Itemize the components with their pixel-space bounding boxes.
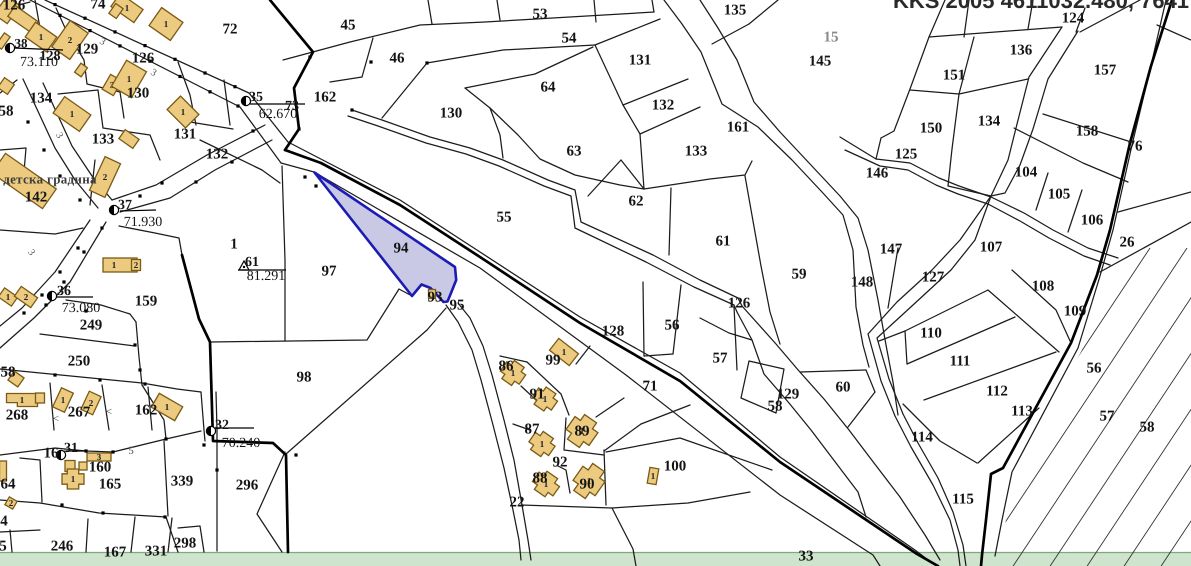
svg-text:111: 111	[950, 353, 971, 369]
svg-text:134: 134	[30, 90, 53, 106]
svg-text:160: 160	[89, 459, 112, 475]
svg-text:131: 131	[629, 52, 652, 68]
svg-text:158: 158	[1076, 123, 1099, 139]
svg-text:15: 15	[824, 29, 839, 45]
svg-text:165: 165	[99, 476, 122, 492]
svg-text:59: 59	[792, 266, 807, 282]
svg-text:104: 104	[1015, 164, 1038, 180]
svg-text:150: 150	[920, 120, 943, 136]
svg-text:161: 161	[727, 119, 750, 135]
svg-text:2: 2	[68, 35, 73, 45]
svg-text:1: 1	[562, 347, 567, 357]
svg-text:<: <	[106, 406, 112, 418]
svg-text:1: 1	[540, 439, 545, 449]
svg-text:1: 1	[127, 74, 132, 84]
svg-text:46: 46	[390, 50, 406, 66]
svg-text:86: 86	[499, 358, 515, 374]
svg-text:26: 26	[1120, 234, 1136, 250]
svg-text:159: 159	[135, 293, 158, 309]
svg-text:<: <	[53, 413, 59, 425]
svg-text:36: 36	[57, 284, 71, 299]
svg-text:2: 2	[134, 260, 139, 270]
svg-text:88: 88	[533, 470, 548, 486]
svg-text:142: 142	[25, 189, 48, 205]
svg-text:98: 98	[297, 369, 312, 385]
svg-text:146: 146	[866, 165, 889, 181]
svg-text:32: 32	[215, 418, 229, 433]
svg-text:4: 4	[0, 513, 8, 529]
svg-text:135: 135	[724, 2, 747, 18]
svg-text:249: 249	[80, 317, 103, 333]
svg-text:61: 61	[245, 255, 259, 270]
svg-text:72: 72	[223, 21, 238, 37]
svg-text:132: 132	[206, 146, 229, 162]
svg-text:145: 145	[809, 53, 832, 69]
svg-text:2: 2	[24, 292, 29, 302]
svg-text:61: 61	[716, 233, 731, 249]
svg-text:64: 64	[1, 476, 17, 492]
svg-text:126: 126	[132, 50, 155, 66]
svg-text:147: 147	[880, 241, 903, 257]
svg-text:55: 55	[497, 209, 512, 225]
svg-text:53: 53	[533, 6, 548, 22]
svg-text:1: 1	[71, 474, 76, 484]
svg-text:134: 134	[978, 113, 1001, 129]
svg-text:64: 64	[541, 79, 557, 95]
svg-text:125: 125	[895, 146, 918, 162]
svg-text:133: 133	[685, 143, 708, 159]
svg-text:97: 97	[322, 263, 338, 279]
svg-text:157: 157	[1094, 62, 1117, 78]
svg-text:298: 298	[174, 535, 197, 551]
svg-text:1: 1	[181, 107, 186, 117]
svg-text:KKS 2005 4611032.480, 764175.0: KKS 2005 4611032.480, 764175.070	[893, 0, 1191, 13]
svg-text:108: 108	[1032, 278, 1055, 294]
svg-text:113: 113	[1011, 403, 1033, 419]
svg-text:31: 31	[64, 441, 78, 456]
svg-text:339: 339	[171, 473, 194, 489]
svg-text:38: 38	[15, 36, 29, 51]
svg-text:35: 35	[249, 90, 263, 105]
svg-text:57: 57	[1100, 408, 1116, 424]
svg-text:95: 95	[450, 297, 465, 313]
svg-text:128: 128	[602, 323, 625, 339]
svg-text:58: 58	[1, 364, 16, 380]
svg-text:57: 57	[713, 350, 729, 366]
svg-text:22: 22	[510, 494, 525, 510]
svg-text:1: 1	[61, 395, 66, 405]
svg-text:267: 267	[68, 404, 91, 420]
svg-text:73.080: 73.080	[62, 301, 101, 316]
svg-text:89: 89	[575, 423, 590, 439]
svg-text:детска градина: детска градина	[3, 172, 97, 187]
svg-text:91: 91	[530, 386, 545, 402]
svg-text:296: 296	[236, 477, 259, 493]
svg-text:56: 56	[665, 317, 681, 333]
svg-text:129: 129	[76, 41, 99, 57]
svg-text:1: 1	[6, 292, 11, 302]
svg-text:100: 100	[664, 458, 687, 474]
svg-text:2: 2	[9, 498, 14, 508]
svg-text:126: 126	[3, 0, 26, 13]
svg-text:132: 132	[652, 97, 675, 113]
svg-text:16: 16	[44, 445, 60, 461]
svg-text:1: 1	[651, 471, 656, 481]
svg-text:167: 167	[104, 544, 127, 560]
svg-text:109: 109	[1064, 303, 1087, 319]
svg-text:71.930: 71.930	[124, 215, 163, 230]
svg-text:151: 151	[943, 67, 966, 83]
svg-text:331: 331	[145, 543, 168, 559]
svg-text:70.240: 70.240	[222, 436, 261, 451]
svg-text:99: 99	[546, 352, 561, 368]
svg-text:105: 105	[1048, 186, 1071, 202]
svg-text:62.670: 62.670	[259, 107, 298, 122]
svg-text:130: 130	[127, 85, 150, 101]
svg-text:130: 130	[440, 105, 463, 121]
svg-text:5: 5	[128, 445, 134, 457]
svg-text:133: 133	[92, 131, 115, 147]
svg-text:58: 58	[0, 103, 14, 119]
svg-text:162: 162	[314, 89, 337, 105]
svg-text:106: 106	[1081, 212, 1104, 228]
svg-text:2: 2	[103, 172, 108, 182]
svg-text:126: 126	[728, 295, 751, 311]
svg-text:60: 60	[836, 379, 851, 395]
svg-text:73.110: 73.110	[20, 55, 58, 70]
svg-text:76: 76	[1128, 138, 1144, 154]
svg-text:87: 87	[525, 421, 541, 437]
svg-text:148: 148	[851, 274, 874, 290]
svg-text:114: 114	[911, 429, 933, 445]
svg-text:162: 162	[135, 402, 158, 418]
svg-text:115: 115	[952, 491, 974, 507]
svg-text:90: 90	[580, 476, 595, 492]
svg-text:1: 1	[125, 3, 130, 13]
svg-text:63: 63	[567, 143, 582, 159]
svg-text:250: 250	[68, 353, 91, 369]
svg-text:1: 1	[70, 109, 75, 119]
svg-text:1: 1	[164, 19, 169, 29]
svg-text:93: 93	[428, 289, 443, 305]
svg-text:37: 37	[118, 198, 132, 213]
svg-text:112: 112	[986, 383, 1008, 399]
svg-text:136: 136	[1010, 42, 1033, 58]
svg-text:62: 62	[629, 193, 644, 209]
svg-text:33: 33	[799, 548, 814, 564]
svg-text:74: 74	[91, 0, 107, 12]
svg-text:81.291: 81.291	[247, 269, 286, 284]
svg-text:92: 92	[553, 454, 568, 470]
svg-text:107: 107	[980, 239, 1003, 255]
svg-text:54: 54	[562, 30, 578, 46]
svg-text:94: 94	[394, 240, 410, 256]
svg-text:5: 5	[0, 538, 7, 554]
svg-text:58: 58	[768, 398, 783, 414]
svg-text:1: 1	[165, 402, 170, 412]
svg-text:45: 45	[341, 17, 356, 33]
svg-text:58: 58	[1140, 419, 1155, 435]
svg-text:110: 110	[920, 325, 942, 341]
svg-text:1: 1	[230, 236, 238, 252]
svg-text:56: 56	[1087, 360, 1103, 376]
svg-text:71: 71	[643, 378, 658, 394]
svg-text:131: 131	[174, 126, 197, 142]
svg-text:1: 1	[39, 32, 44, 42]
svg-text:127: 127	[922, 269, 945, 285]
svg-text:1: 1	[20, 395, 25, 405]
svg-text:1: 1	[112, 260, 117, 270]
svg-text:246: 246	[51, 538, 74, 554]
svg-text:268: 268	[6, 407, 29, 423]
